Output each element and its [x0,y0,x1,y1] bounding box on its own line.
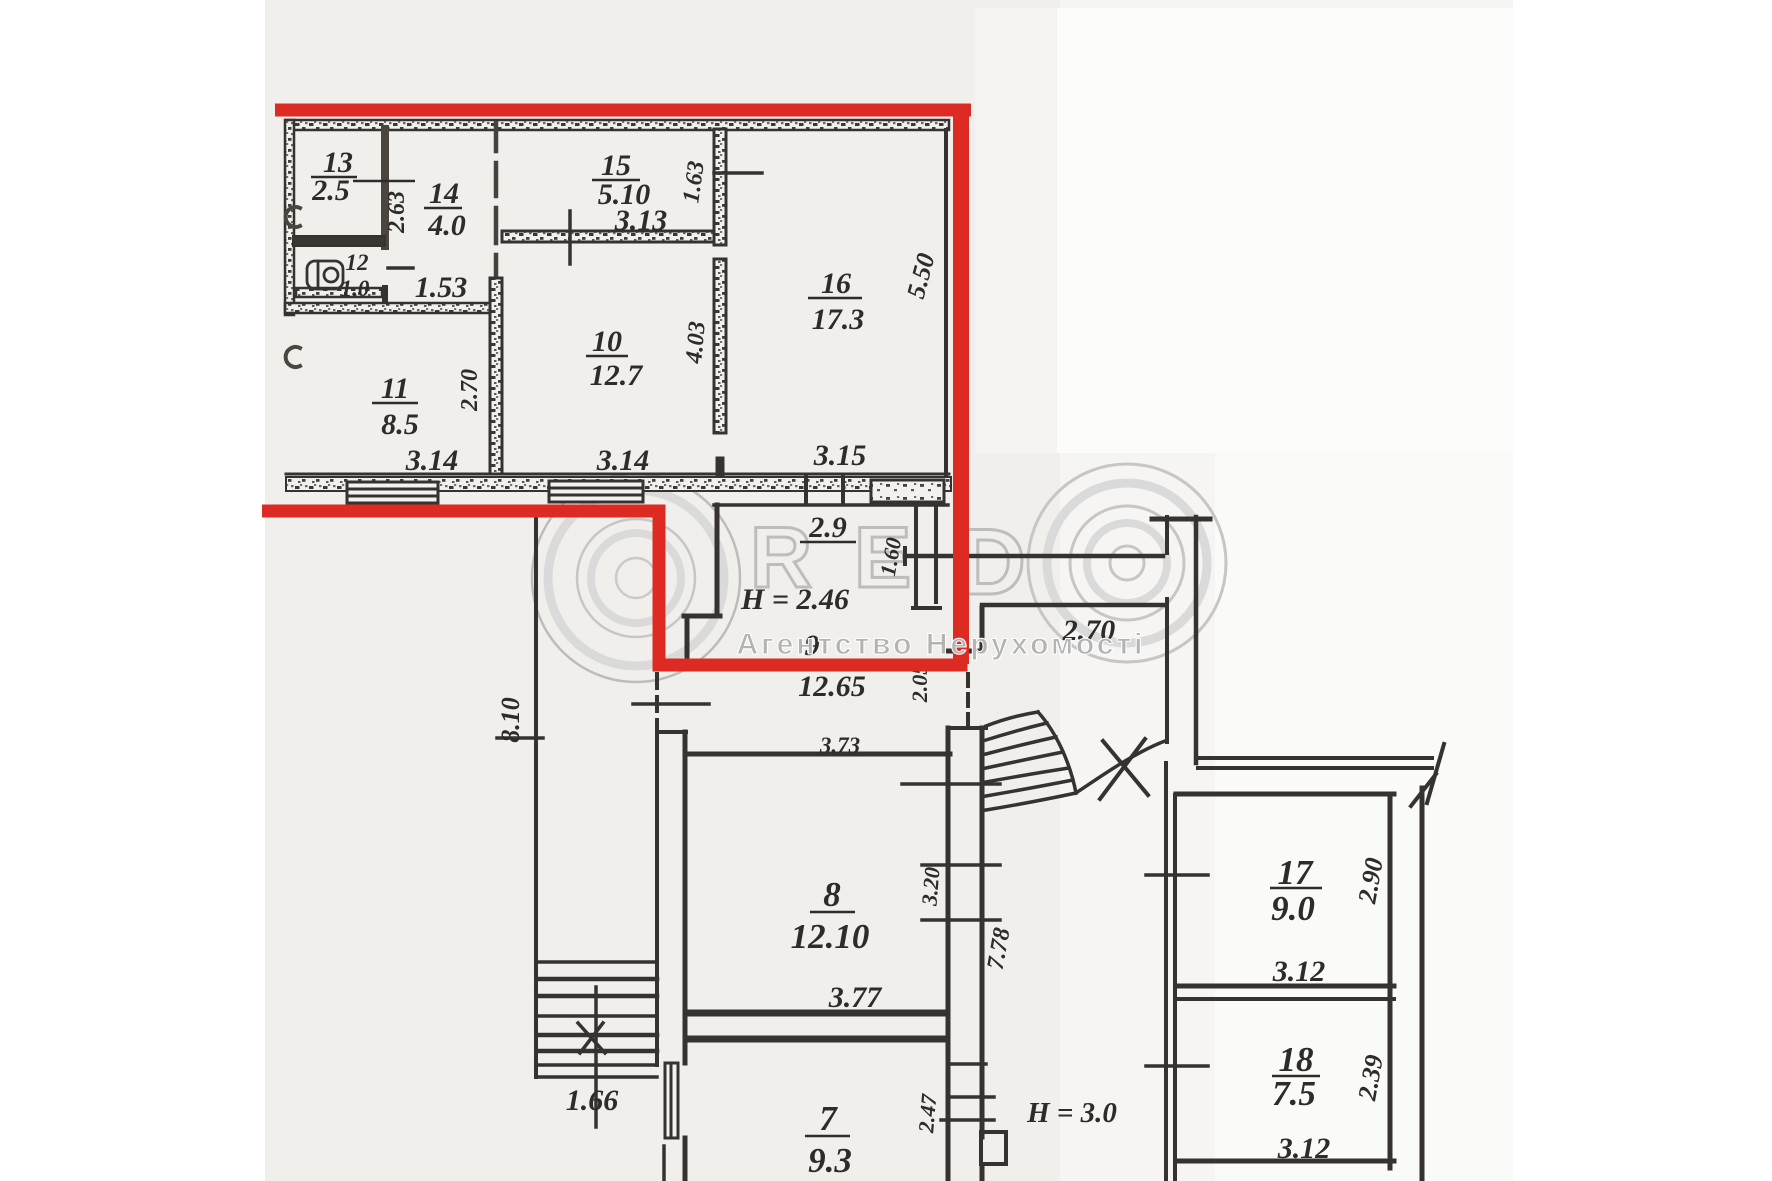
svg-text:H = 2.46: H = 2.46 [740,583,849,616]
svg-text:3.12: 3.12 [1272,955,1326,988]
svg-text:12.65: 12.65 [798,670,866,703]
svg-text:7: 7 [819,1099,838,1138]
svg-text:3.13: 3.13 [614,204,668,237]
svg-text:3.20: 3.20 [916,866,944,908]
svg-text:8.10: 8.10 [496,697,525,743]
svg-text:2.70: 2.70 [457,369,483,412]
svg-text:1.53: 1.53 [415,271,468,304]
svg-text:2.9: 2.9 [808,511,847,544]
svg-text:3.77: 3.77 [828,981,883,1014]
svg-text:14: 14 [429,177,459,210]
svg-text:4.0: 4.0 [427,209,466,242]
svg-text:3.15: 3.15 [813,439,867,472]
svg-text:4.03: 4.03 [681,320,711,365]
svg-text:17: 17 [1278,853,1315,892]
svg-text:8.5: 8.5 [381,408,419,441]
svg-text:2.63: 2.63 [384,191,410,234]
svg-text:3.12: 3.12 [1277,1132,1331,1165]
svg-text:9.0: 9.0 [1271,889,1315,928]
svg-text:3.14: 3.14 [405,444,459,477]
svg-text:3.14: 3.14 [596,444,650,477]
svg-text:Агентство Нерухомості: Агентство Нерухомості [737,628,1146,661]
svg-text:2.5: 2.5 [311,174,350,207]
svg-text:1.66: 1.66 [566,1084,619,1117]
svg-text:1.0: 1.0 [341,276,370,301]
svg-text:12.7: 12.7 [590,359,644,392]
svg-text:11: 11 [381,372,409,405]
svg-text:3.73: 3.73 [819,733,860,758]
svg-text:12.10: 12.10 [791,917,870,956]
svg-text:10: 10 [592,325,622,358]
svg-text:16: 16 [821,267,851,300]
svg-text:12: 12 [346,250,369,275]
svg-text:8: 8 [823,875,841,914]
svg-text:2.47: 2.47 [913,1092,941,1135]
svg-text:7.5: 7.5 [1272,1074,1316,1113]
svg-text:H = 3.0: H = 3.0 [1026,1097,1117,1129]
svg-text:9.3: 9.3 [808,1141,852,1180]
svg-text:17.3: 17.3 [812,303,865,336]
